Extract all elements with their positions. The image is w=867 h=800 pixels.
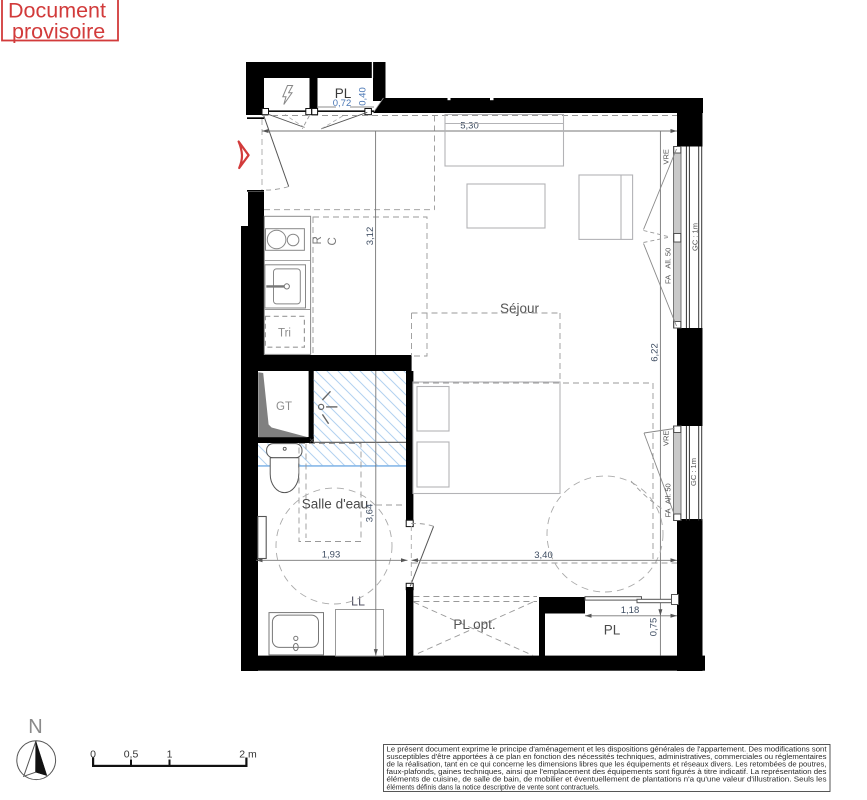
svg-text:3,64: 3,64 <box>365 504 376 523</box>
svg-text:FA All. 50: FA All. 50 <box>664 248 673 284</box>
svg-text:C: C <box>327 237 339 245</box>
svg-text:provisoire: provisoire <box>12 20 105 44</box>
svg-text:0,40: 0,40 <box>358 87 369 106</box>
svg-text:1,93: 1,93 <box>322 550 341 561</box>
svg-text:Salle d'eau: Salle d'eau <box>302 497 368 512</box>
svg-text:VRE: VRE <box>662 431 671 446</box>
svg-text:FA All. 50: FA All. 50 <box>664 483 673 517</box>
svg-text:susceptibles d'être apportées: susceptibles d'être apportées à ce plan … <box>387 754 828 761</box>
svg-text:5,30: 5,30 <box>460 121 479 132</box>
svg-text:R: R <box>312 236 324 244</box>
svg-text:Séjour: Séjour <box>500 301 540 316</box>
svg-text:1: 1 <box>167 749 173 761</box>
svg-text:GT: GT <box>276 401 292 413</box>
svg-text:N: N <box>28 716 42 738</box>
svg-text:faux-plafonds, gaines techniqu: faux-plafonds, gaines techniques, ainsi … <box>387 769 828 776</box>
svg-text:VRE: VRE <box>662 149 671 164</box>
svg-text:2 m: 2 m <box>239 749 257 761</box>
svg-text:PL opt.: PL opt. <box>453 617 495 632</box>
svg-text:éléments définis dans la notic: éléments définis dans la notice descript… <box>387 784 600 791</box>
svg-text:Tri: Tri <box>278 328 291 340</box>
svg-text:éléments de cuisine, de salle: éléments de cuisine, de salle de bain, d… <box>387 777 828 784</box>
svg-text:0,5: 0,5 <box>124 749 139 761</box>
svg-text:GC : 1m: GC : 1m <box>689 458 698 486</box>
svg-text:3,40: 3,40 <box>534 550 553 561</box>
svg-text:GC : 1m: GC : 1m <box>691 223 700 251</box>
svg-text:Le présent document exprime le: Le présent document exprime le principe … <box>387 746 827 753</box>
svg-text:0,75: 0,75 <box>649 618 660 637</box>
svg-text:de la réalisation, tant en ce: de la réalisation, tant en ce qui concer… <box>387 762 827 769</box>
svg-text:6,22: 6,22 <box>650 343 661 362</box>
svg-text:PL: PL <box>604 623 621 638</box>
svg-text:3,12: 3,12 <box>365 227 376 246</box>
svg-text:1,18: 1,18 <box>621 605 640 616</box>
